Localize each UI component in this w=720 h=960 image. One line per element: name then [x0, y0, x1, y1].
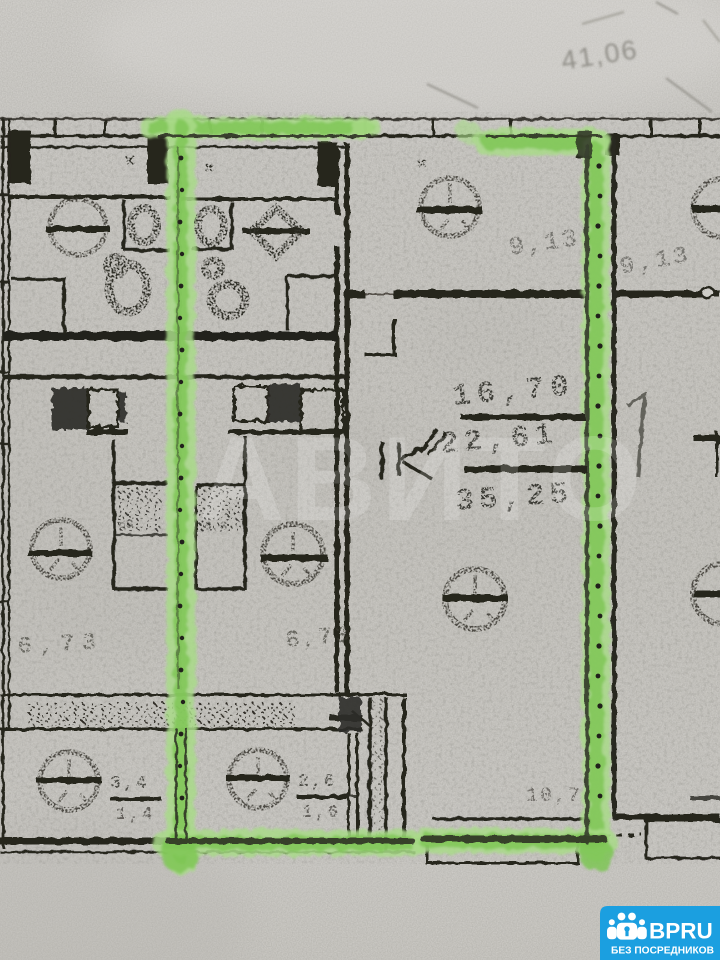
svg-text:1,6: 1,6: [302, 803, 340, 823]
svg-text:BPRU: BPRU: [649, 919, 713, 944]
svg-text:БЕЗ ПОСРЕДНИКОВ: БЕЗ ПОСРЕДНИКОВ: [611, 946, 714, 957]
svg-text:1,4: 1,4: [116, 805, 154, 825]
svg-text:АВИТО: АВИТО: [198, 412, 646, 546]
svg-text:10,7: 10,7: [526, 785, 582, 808]
svg-text:63: 63: [118, 517, 134, 532]
svg-text:2,6: 2,6: [298, 772, 336, 792]
svg-text:3,4: 3,4: [110, 774, 148, 794]
svg-text:6,73: 6,73: [17, 630, 104, 661]
svg-text:6,73: 6,73: [284, 622, 352, 655]
